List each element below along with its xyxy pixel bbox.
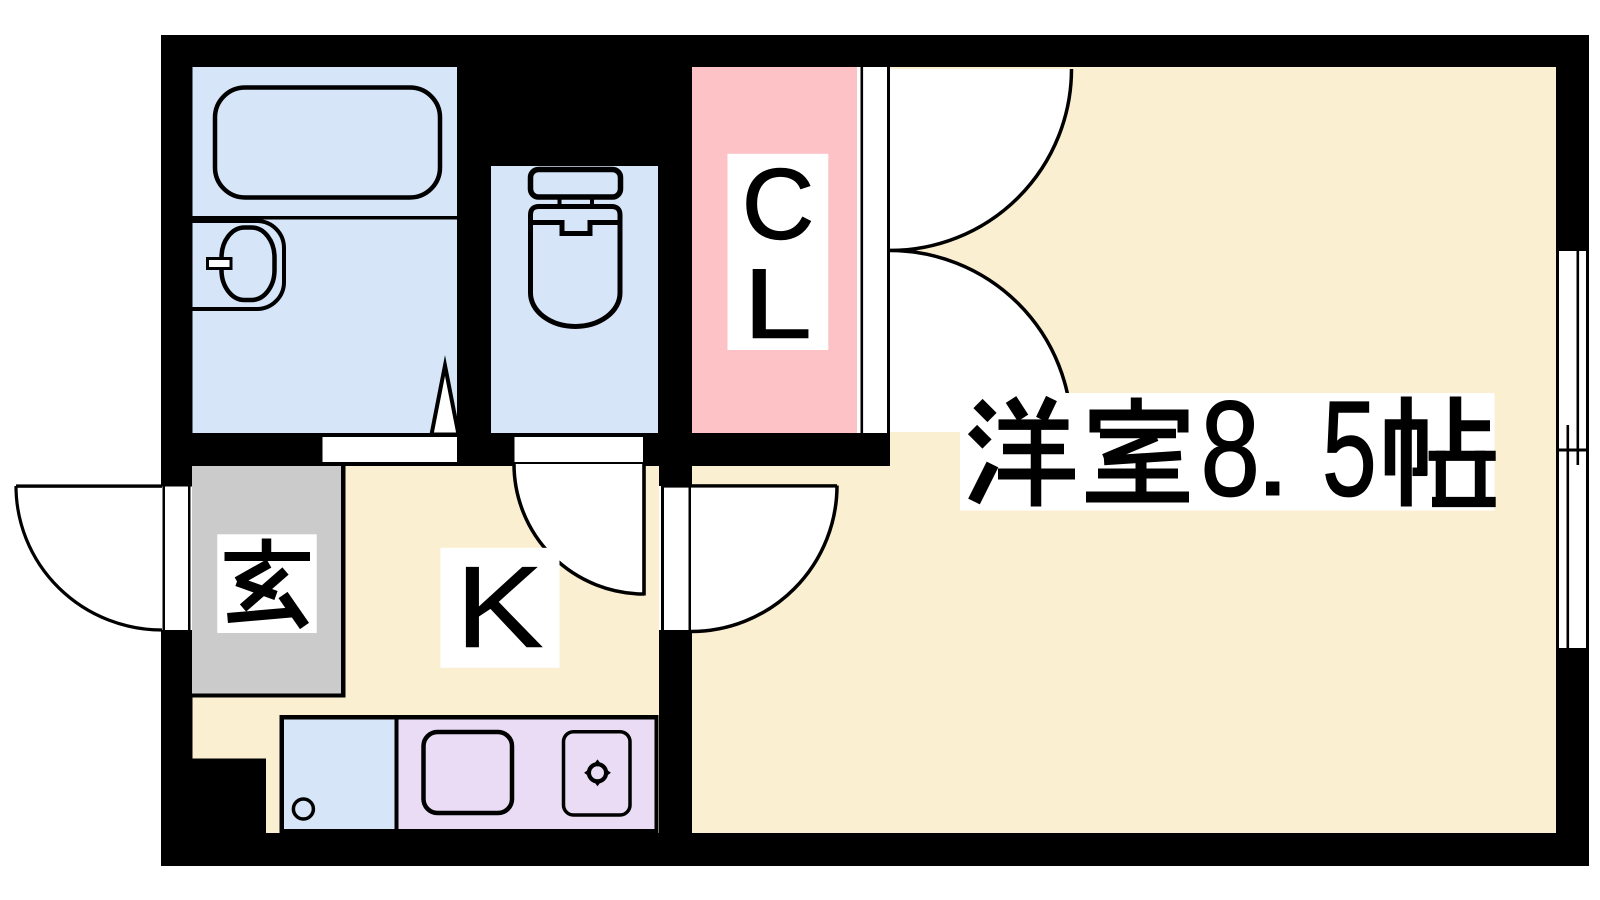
svg-text:5: 5 (1322, 373, 1377, 525)
svg-text:L: L (743, 249, 811, 359)
svg-text:C: C (742, 149, 814, 261)
svg-text:K: K (455, 543, 543, 673)
svg-text:8: 8 (1200, 372, 1260, 524)
